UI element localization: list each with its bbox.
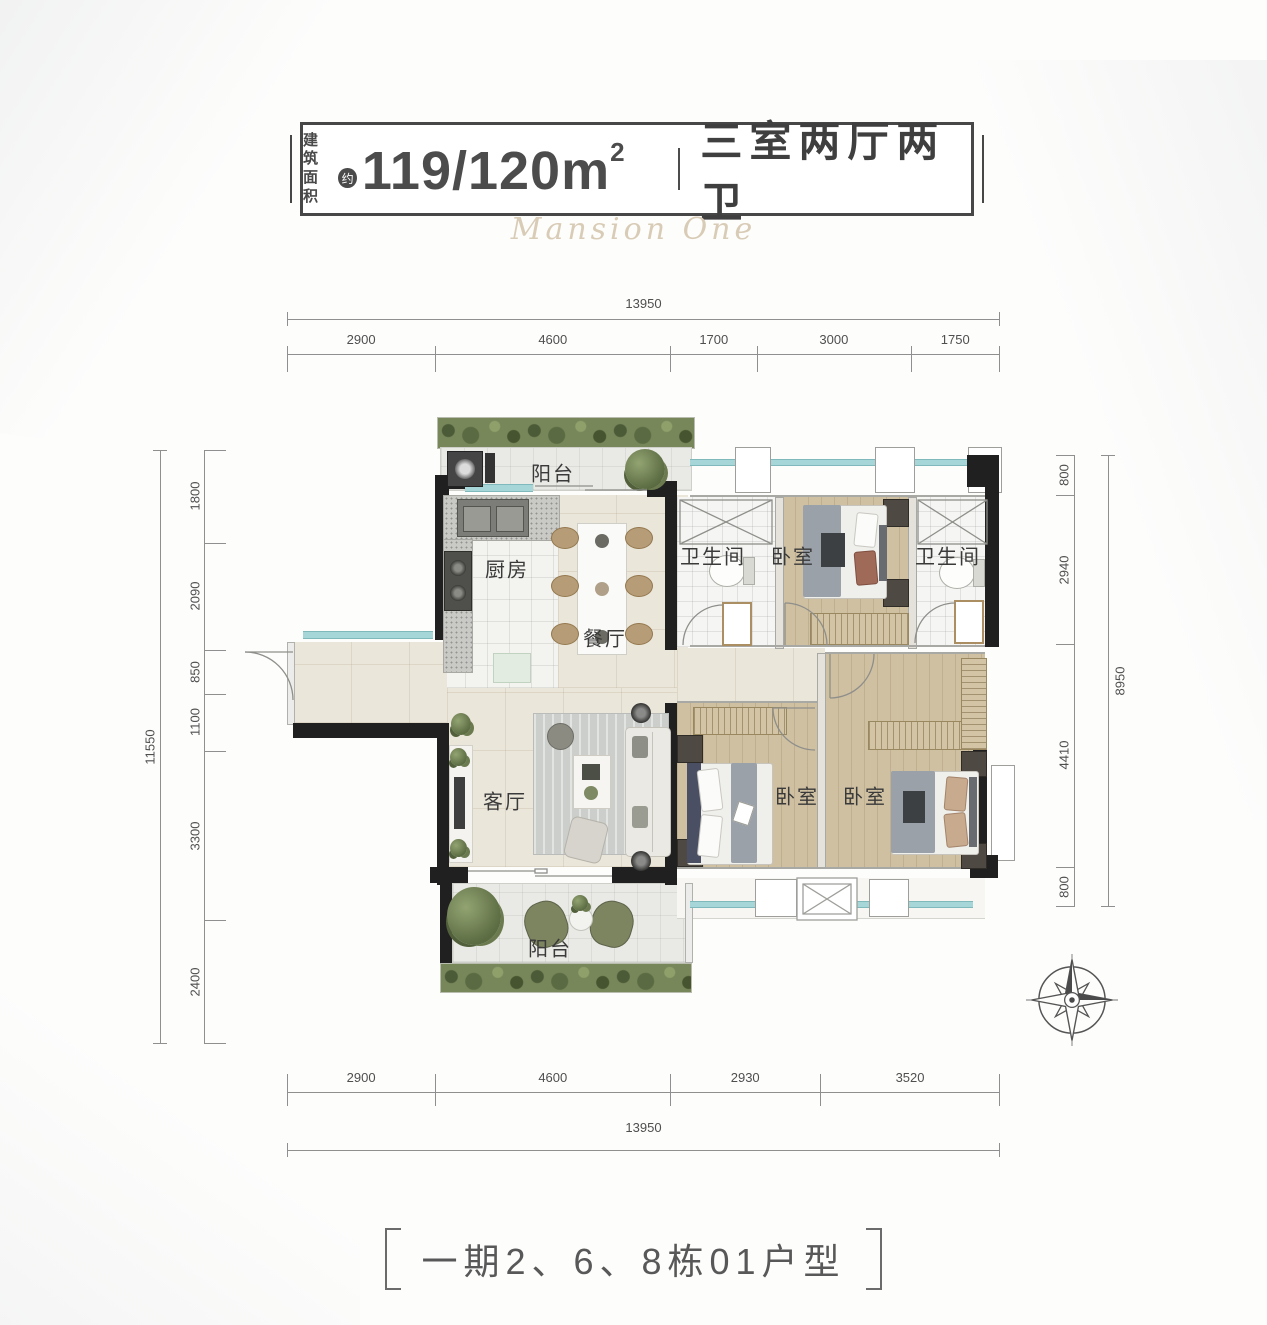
dimension-segment: 3000: [757, 330, 910, 372]
floor-plan-page: 建筑 面积 约 119/120m2 三室两厅两卫 Mansion One 139…: [0, 0, 1267, 1325]
header-title-box: 建筑 面积 约 119/120m2 三室两厅两卫: [300, 122, 974, 216]
utility-shaft: [797, 878, 857, 920]
dimension-right-segments: 80029404410800: [1052, 455, 1092, 907]
dimension-segment: 800: [1052, 455, 1092, 495]
door-arc: [683, 605, 723, 645]
room-label-kitchen: 厨房: [485, 554, 529, 583]
dimension-segment: 1700: [670, 330, 757, 372]
compass-icon: [1026, 954, 1118, 1046]
dimension-segment: 850: [188, 650, 228, 694]
dimension-segment: 2930: [670, 1062, 820, 1108]
door-arc: [830, 654, 874, 698]
door-arc: [915, 603, 955, 643]
door-arc: [773, 708, 815, 750]
dimension-segment: 800: [1052, 867, 1092, 907]
room-label-bathroom-1: 卫生间: [680, 541, 746, 570]
shower-zone: [918, 500, 987, 544]
approx-badge: 约: [338, 168, 356, 188]
caption-bracket-left: [385, 1228, 401, 1290]
dimension-segment: 1750: [911, 330, 1000, 372]
dimension-bottom-segments: 2900460029303520: [287, 1062, 1000, 1108]
room-label-balcony-top: 阳台: [531, 458, 575, 487]
plan-linework: [285, 415, 1015, 1000]
dimension-segment: 2090: [188, 543, 228, 651]
brand-watermark: Mansion One: [0, 212, 1267, 247]
caption-text: 一期2、6、8栋01户型: [401, 1233, 865, 1285]
dimension-segment: 2940: [1052, 495, 1092, 643]
dimension-segment: 2400: [188, 920, 228, 1044]
sliding-door: [535, 486, 647, 490]
room-label-bedroom-right: 卧室: [843, 781, 887, 810]
room-label-living: 客厅: [483, 786, 527, 815]
dimension-segment: 4600: [435, 330, 670, 372]
shower-zone: [680, 500, 772, 544]
header-accent-line: [290, 135, 292, 203]
dimension-segment: 1800: [188, 450, 228, 543]
header-divider: [678, 148, 681, 190]
dimension-segment: 2900: [287, 1062, 435, 1108]
area-label: 建筑 面积: [303, 132, 332, 207]
dimension-segment: 4600: [435, 1062, 670, 1108]
door-leaf: [955, 601, 983, 643]
dimension-bottom-total: 13950: [287, 1116, 1000, 1152]
door-arc: [245, 652, 293, 700]
dimension-left-segments: 18002090850110033002400: [188, 450, 228, 1044]
room-label-bedroom-top: 卧室: [771, 541, 815, 570]
dimension-top-total: 13950: [287, 296, 1000, 320]
door-leaf: [723, 603, 751, 645]
room-label-dining: 餐厅: [583, 623, 627, 652]
dimension-top-segments: 29004600170030001750: [287, 330, 1000, 372]
door-arc: [785, 603, 827, 645]
room-label-bedroom-left: 卧室: [775, 781, 819, 810]
dimension-left-total: 11550: [146, 450, 172, 1044]
sliding-door: [468, 869, 612, 876]
dimension-segment: 4410: [1052, 644, 1092, 867]
caption-bracket-right: [866, 1228, 882, 1290]
header-accent-line: [982, 135, 984, 203]
dimension-segment: 1100: [188, 694, 228, 751]
dimension-segment: 3300: [188, 751, 228, 921]
dimension-segment: 3520: [820, 1062, 1000, 1108]
footer-caption: 一期2、6、8栋01户型: [0, 1228, 1267, 1290]
dimension-segment: 2900: [287, 330, 435, 372]
area-value: 119/120m2: [362, 137, 626, 202]
room-label-balcony-bottom: 阳台: [528, 933, 572, 962]
floor-plan: 阳台 厨房 餐厅 卫生间 卧室 卫生间 客厅 卧室 卧室 阳台: [285, 415, 1015, 1000]
room-label-bathroom-2: 卫生间: [915, 541, 981, 570]
dimension-right-total: 8950: [1096, 455, 1126, 907]
